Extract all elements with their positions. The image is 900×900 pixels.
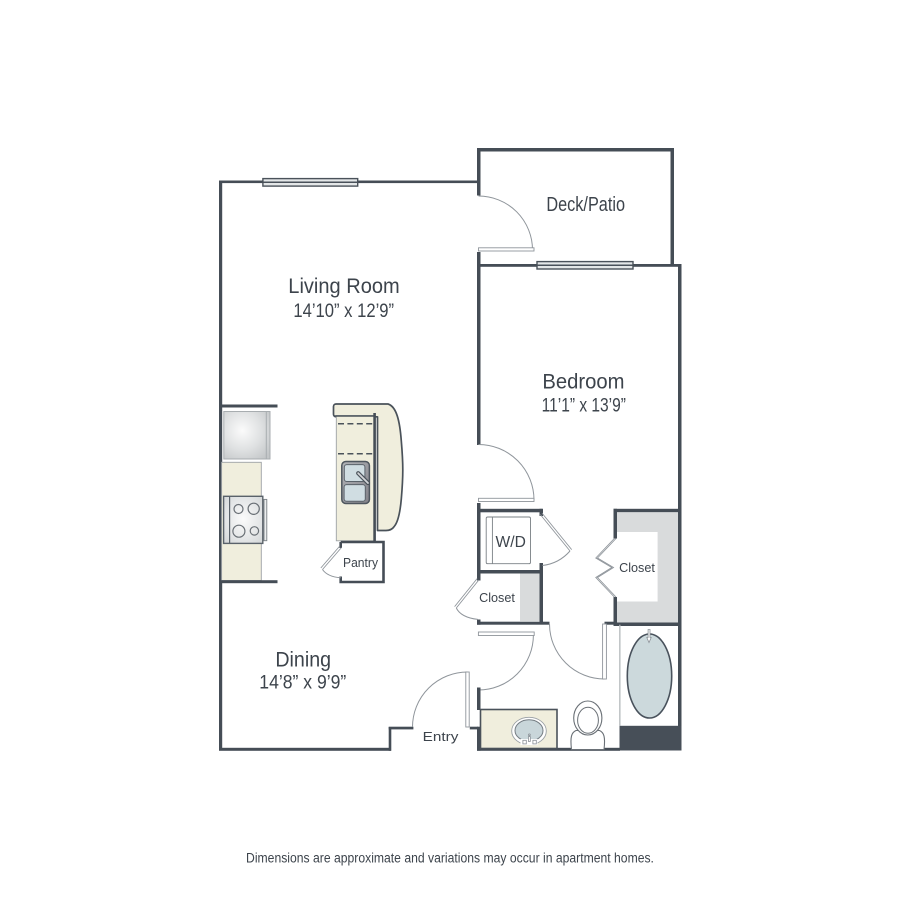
svg-text:Dimensions are approximate and: Dimensions are approximate and variation… (246, 851, 654, 866)
svg-text:14’8” x 9’9”: 14’8” x 9’9” (259, 673, 346, 694)
svg-text:Closet: Closet (619, 560, 655, 575)
svg-text:Dining: Dining (275, 648, 331, 672)
svg-text:14’10” x 12’9”: 14’10” x 12’9” (293, 300, 394, 322)
svg-text:Deck/Patio: Deck/Patio (546, 194, 625, 216)
svg-text:Entry: Entry (423, 729, 459, 744)
svg-text:Bedroom: Bedroom (542, 370, 624, 394)
svg-text:Living Room: Living Room (288, 274, 399, 298)
svg-text:Pantry: Pantry (343, 555, 378, 570)
svg-text:11’1” x 13’9”: 11’1” x 13’9” (542, 396, 626, 417)
svg-text:W/D: W/D (496, 534, 526, 551)
svg-text:Closet: Closet (479, 590, 515, 605)
